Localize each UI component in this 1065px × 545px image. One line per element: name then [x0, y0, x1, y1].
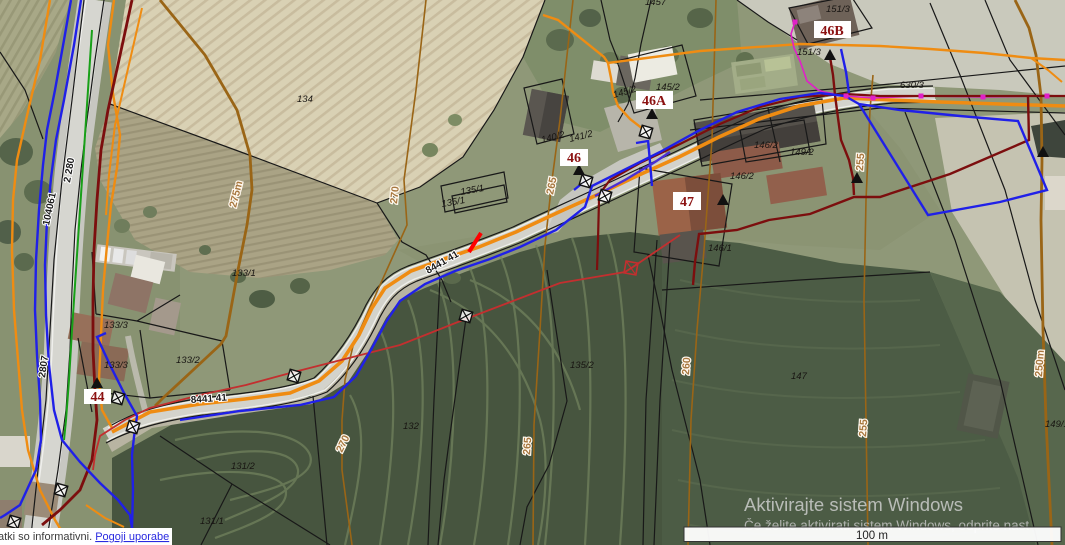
svg-text:250m: 250m	[1033, 350, 1047, 378]
svg-text:149/1: 149/1	[1045, 419, 1065, 430]
svg-text:146/1: 146/1	[708, 243, 732, 254]
svg-text:151/3: 151/3	[826, 4, 850, 15]
svg-text:133/1: 133/1	[232, 268, 256, 279]
svg-text:134: 134	[297, 94, 313, 105]
svg-text:630/3: 630/3	[900, 80, 924, 91]
svg-text:270: 270	[388, 185, 402, 204]
svg-text:133/3: 133/3	[104, 320, 128, 331]
svg-text:255: 255	[857, 419, 870, 437]
svg-text:132: 132	[403, 421, 420, 432]
svg-text:145/2: 145/2	[656, 82, 680, 93]
svg-text:Aktivirajte sistem Windows: Aktivirajte sistem Windows	[744, 494, 963, 515]
svg-text:1457: 1457	[645, 0, 667, 8]
svg-text:149/2: 149/2	[790, 147, 814, 158]
svg-text:47: 47	[680, 195, 694, 210]
svg-text:133/2: 133/2	[176, 355, 200, 366]
svg-text:46A: 46A	[642, 94, 667, 109]
svg-text:260: 260	[680, 357, 693, 375]
svg-text:133/3: 133/3	[104, 360, 128, 371]
svg-text:265: 265	[521, 437, 534, 455]
svg-text:131/2: 131/2	[231, 461, 255, 472]
svg-text:151/3: 151/3	[797, 47, 821, 58]
svg-text:147: 147	[791, 371, 808, 382]
svg-text:44: 44	[91, 390, 105, 405]
svg-text:146/2: 146/2	[730, 171, 754, 182]
svg-text:135/2: 135/2	[570, 360, 594, 371]
svg-text:146/2: 146/2	[754, 140, 778, 151]
svg-text:atki so informativni. Pogoji u: atki so informativni. Pogoji uporabe	[0, 531, 169, 543]
svg-text:46B: 46B	[820, 24, 843, 39]
svg-text:100 m: 100 m	[856, 530, 888, 542]
svg-text:131/1: 131/1	[200, 516, 224, 527]
svg-text:46: 46	[567, 151, 581, 166]
svg-text:255: 255	[854, 153, 867, 171]
